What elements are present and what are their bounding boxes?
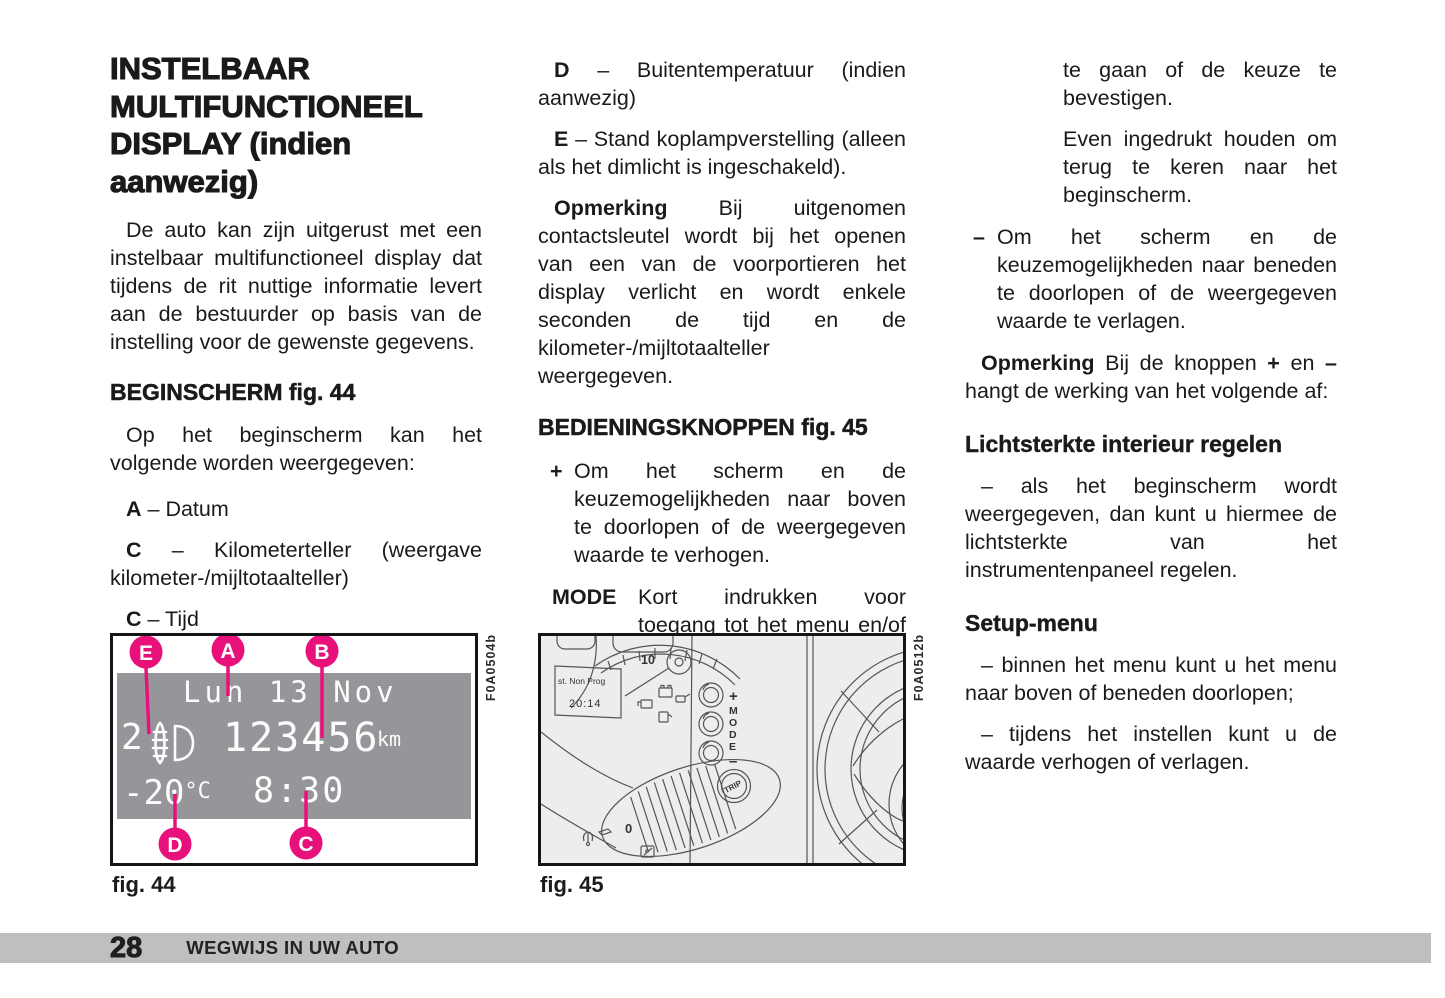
minus-item: – Om het scherm en de keuzemogelijkheden… (965, 223, 1337, 335)
item-label: E (554, 127, 568, 151)
bezel-shape (557, 636, 595, 649)
fig45-display-line2: 20:14 (569, 698, 602, 710)
oil-icon (676, 696, 685, 702)
section-heading-beginscherm: BEGINSCHERM fig. 44 (110, 379, 482, 406)
subheading-lichtsterkte: Lichtsterkte interieur regelen (965, 431, 1337, 458)
trip-display-frame (555, 666, 621, 718)
callout-letter-e: E (139, 642, 153, 665)
mode-continuation-1: te gaan of de keuze te bevestigen. (965, 56, 1337, 112)
manual-page: INSTELBAAR MULTIFUNCTIONEEL DISPLAY (ind… (0, 0, 1445, 998)
mode-letter-d: D (729, 729, 737, 741)
dashboard-illustration: st. Non Prog 20:14 10 + M O D E – TRIP 0 (541, 636, 903, 863)
lichtsterkte-paragraph: – als het beginscherm wordt weergegeven,… (965, 472, 1337, 584)
intro2-paragraph: Op het beginscherm kan het volgende word… (110, 421, 482, 477)
setup-paragraph-2: – tijdens het instellen kunt u de waarde… (965, 720, 1337, 776)
tach-label: 10 (641, 653, 655, 667)
mode-continuation-2: Even ingedrukt houden om terug te keren … (965, 125, 1337, 209)
section-title: WEGWIJS IN UW AUTO (186, 937, 399, 959)
note-text: Bij de knoppen (1095, 351, 1268, 375)
item-label: C (126, 607, 142, 631)
section-heading-bedieningsknoppen: BEDIENINGSKNOPPEN fig. 45 (538, 414, 906, 441)
fig45-display-line1: st. Non Prog (558, 676, 606, 686)
engine-icon (641, 700, 652, 708)
mode-letter-m: M (729, 705, 738, 717)
item-text: – Stand koplampverstelling (alleen als h… (538, 127, 906, 179)
tach-hub-center (675, 658, 683, 666)
page-number: 28 (110, 932, 142, 965)
list-item-e: E – Stand koplampverstelling (alleen als… (538, 125, 906, 181)
callout-letter-a: A (220, 640, 235, 663)
list-item-c2: C – Tijd (110, 605, 482, 633)
steering-wheel (817, 647, 903, 863)
right-column: te gaan of de keuze te bevestigen. Even … (965, 56, 1337, 776)
minus-button-label: – (729, 753, 737, 770)
plus-button (699, 683, 723, 707)
subheading-setup-menu: Setup-menu (965, 610, 1337, 637)
tach-needle (625, 668, 669, 696)
fig45-caption: fig. 45 (540, 872, 604, 898)
note-text: hangt de werking van het volgende af: (965, 379, 1328, 403)
list-item-a: A – Datum (110, 495, 482, 523)
item-label: D (554, 58, 570, 82)
item-label: C (126, 538, 142, 562)
panel-contour (541, 804, 616, 848)
plus-text: Om het scherm en de keuzemogelijkheden n… (574, 459, 906, 567)
note-minus: – (1325, 351, 1337, 375)
article-title: INSTELBAAR MULTIFUNCTIONEEL DISPLAY (ind… (110, 50, 482, 200)
fig44-caption: fig. 44 (112, 872, 176, 898)
note-paragraph: Opmerking Bij uitgenomen contactsleutel … (538, 194, 906, 390)
footer-bar: 28 WEGWIJS IN UW AUTO (0, 933, 1431, 963)
figure-44: Lun 13 Nov 2 123456 km -20°C 8:30 (110, 633, 478, 866)
tach-hub (667, 650, 691, 674)
warning-icons (638, 686, 690, 723)
plus-button-label: + (729, 688, 738, 705)
item-text: – Kilometerteller (weergave kilometer-/m… (110, 538, 482, 590)
minus-label: – (973, 223, 985, 251)
mode-letter-e: E (729, 741, 736, 753)
panel-contour (541, 732, 633, 788)
mode-label: MODE (552, 583, 617, 611)
list-item-c1: C – Kilometerteller (weergave kilometer-… (110, 536, 482, 592)
note-plus: + (1267, 351, 1280, 375)
callout-letter-d: D (167, 834, 182, 857)
list-item-d: D – Buitentemperatuur (indien aanwezig) (538, 56, 906, 112)
item-text: – Buitentemperatuur (indien aanwezig) (538, 58, 906, 110)
callout-letter-c: C (298, 833, 313, 856)
note2-paragraph: Opmerking Bij de knoppen + en – hangt de… (965, 349, 1337, 405)
callout-line-e (146, 668, 149, 734)
fig44-callouts: E A B D C (113, 636, 475, 863)
setup-paragraph-1: – binnen het menu kunt u het menu naar b… (965, 651, 1337, 707)
battery-icon (659, 688, 672, 697)
note-lead: Opmerking (981, 351, 1095, 375)
bezel-shape (613, 636, 673, 652)
callout-letter-b: B (314, 641, 329, 664)
minus-text: Om het scherm en de keuzemogelijkheden n… (997, 225, 1337, 333)
left-column: INSTELBAAR MULTIFUNCTIONEEL DISPLAY (ind… (110, 50, 482, 633)
mode-buttons (699, 683, 723, 765)
panel-divider (690, 636, 692, 863)
item-label: A (126, 497, 142, 521)
mode-button (699, 712, 723, 736)
intro-paragraph: De auto kan zijn uitgerust met een inste… (110, 216, 482, 356)
intermittent-icon (599, 829, 611, 835)
fig45-code: F0A0512b (912, 634, 926, 701)
middle-column: D – Buitentemperatuur (indien aanwezig) … (538, 56, 906, 667)
plus-item: + Om het scherm en de keuzemogelijkheden… (538, 457, 906, 569)
item-text: – Tijd (148, 607, 199, 631)
fuel-icon (659, 712, 668, 722)
item-text: – Datum (148, 497, 229, 521)
plus-label: + (550, 457, 563, 485)
figure-45: st. Non Prog 20:14 10 + M O D E – TRIP 0… (538, 633, 906, 866)
trip-button-label: TRIP (723, 778, 744, 795)
note-text: Bij uitgenomen contactsleutel wordt bij … (538, 196, 906, 388)
washer-icon (583, 832, 592, 846)
note-text: en (1280, 351, 1325, 375)
stalk-zero-label: 0 (625, 821, 632, 836)
note-lead: Opmerking (554, 196, 668, 220)
mode-letter-o: O (729, 717, 737, 729)
fig44-code: F0A0504b (484, 634, 498, 701)
